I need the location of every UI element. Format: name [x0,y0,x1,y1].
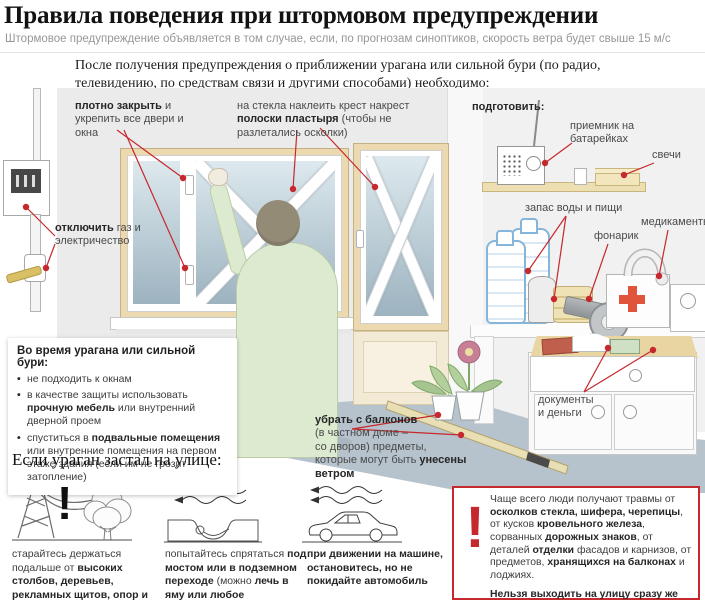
switch [16,175,19,187]
page-subtitle: Штормовое предупреждение объявляется в т… [5,33,671,45]
drawer-front [530,356,695,392]
counter-leg [474,336,494,424]
label-tape-glass: на стекла наклеить крест накрест полоски… [237,100,453,140]
header: Правила поведения при штормовом предупре… [0,0,705,53]
red-cross-icon [628,286,637,312]
switch [24,175,27,187]
container-lid-knob [680,293,696,309]
canister [528,276,556,323]
door-panel-inset [363,341,437,393]
drawer-knob [629,369,642,382]
street-tip-car: при движении на машине, остановитесь, но… [307,548,445,589]
cabinet-door-right [614,394,694,450]
label-radio: приемник на батарейках [570,120,645,147]
bullet-marker: • [17,389,27,428]
label-prepare: подготовить: [472,101,544,114]
side-window-latch [356,230,364,248]
side-window-frame [353,143,449,331]
radio-dial [526,156,541,171]
label-documents: документы и деньги [538,394,600,421]
window-latch-bottom [185,265,194,285]
warning-paragraph: Нельзя выходить на улицу сразу же после … [490,589,692,602]
warning-paragraph: Чаще всего люди получают травмы от оскол… [490,494,692,583]
wind-waves-icon [310,487,382,504]
radio-speaker-grid [502,154,523,176]
white-container [670,284,705,332]
street-section-heading: Если ураган застал на улице: [12,450,222,470]
radio [497,146,545,185]
switch [32,175,35,187]
water-bottle [486,240,526,324]
during-box-heading: Во время урагана или сильной бури: [17,345,229,369]
bottle-cap [520,218,538,234]
exclamation-icon: ! [57,480,72,526]
warning-text: Чаще всего люди получают травмы от оскол… [490,494,692,592]
person-head [256,200,300,246]
label-turn-off-gas: отключить газ и электричество [55,222,175,249]
door-knob [623,405,637,419]
street-tip-shelter: попытайтесь спрятаться под мостом или в … [165,548,309,602]
label-flashlight: фонарик [594,230,638,243]
during-storm-box: Во время урагана или сильной бури: • не … [8,338,237,495]
conduit-pipe [33,88,41,163]
bullet-item: • в качестве защиты использовать прочную… [17,389,229,428]
page-root: Правила поведения при штормовом предупре… [0,0,705,602]
label-close-windows: плотно закрыть и укрепить все двери и ок… [75,100,207,140]
label-balcony: убрать с балконов (в частном доме – со д… [315,414,475,481]
fuse-box [3,160,50,216]
bullet-text: не подходить к окнам [27,373,132,386]
bottle-cap [496,230,514,246]
street-tip-pylon: старайтесь держаться подальше от высоких… [12,548,164,602]
label-medicines: медикаменты [641,216,705,229]
balcony-door-panel [353,331,449,405]
label-candles: свечи [652,149,681,162]
bullet-text: в качестве защиты использовать прочную м… [27,389,229,428]
side-window-glass [366,156,434,316]
fuse-panel [11,169,41,193]
first-aid-kit [606,274,670,328]
car-icon [309,512,397,541]
money-stack [610,339,640,354]
ditch-shelter-icon [168,520,258,541]
bullet-marker: • [17,373,27,386]
candles-box [595,173,640,186]
person-hand [208,168,228,186]
warning-box: ! Чаще всего люди получают травмы от оск… [452,486,700,600]
page-title: Правила поведения при штормовом предупре… [4,2,598,30]
candle [574,168,587,185]
window-latch-top [185,175,194,195]
label-water-food: запас воды и пищи [525,202,645,215]
warning-exclamation-icon: ! [460,500,490,592]
bullet-item: • не подходить к окнам [17,373,229,386]
